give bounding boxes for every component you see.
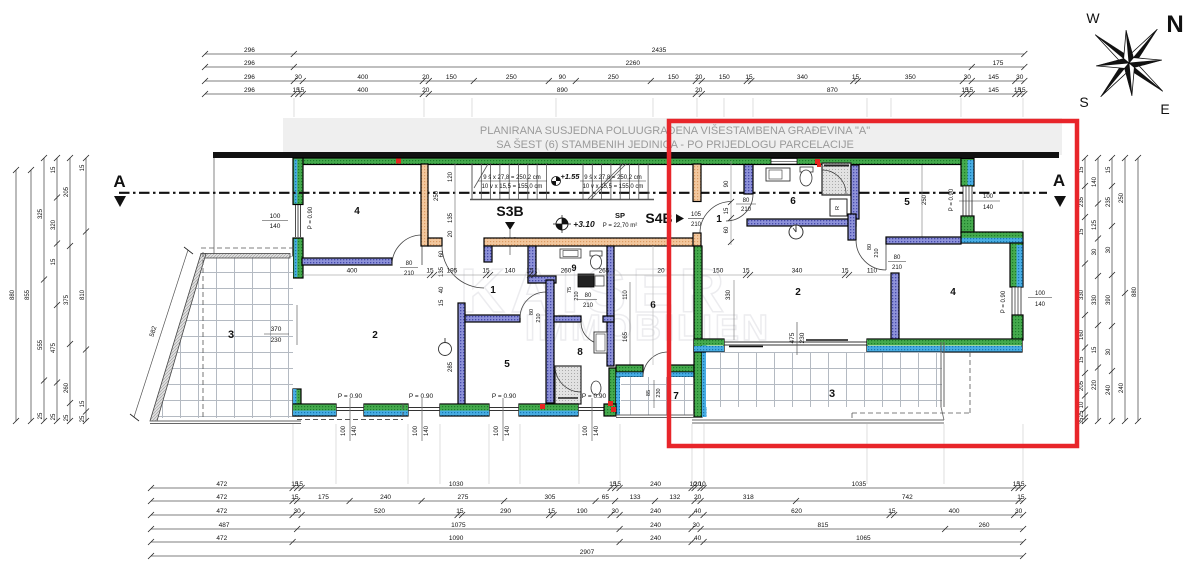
svg-text:150: 150 bbox=[719, 74, 730, 81]
svg-text:240: 240 bbox=[1119, 382, 1125, 393]
svg-text:40: 40 bbox=[694, 535, 702, 542]
svg-text:15: 15 bbox=[482, 268, 490, 275]
svg-text:140: 140 bbox=[424, 425, 430, 436]
svg-text:620: 620 bbox=[791, 508, 802, 515]
svg-text:318: 318 bbox=[743, 494, 754, 501]
svg-text:1: 1 bbox=[490, 285, 496, 296]
svg-text:296: 296 bbox=[244, 87, 255, 94]
svg-text:N: N bbox=[1166, 11, 1183, 38]
svg-text:145: 145 bbox=[988, 74, 999, 81]
svg-text:80: 80 bbox=[406, 261, 413, 267]
svg-text:100: 100 bbox=[1035, 291, 1046, 297]
svg-text:100: 100 bbox=[983, 194, 994, 200]
svg-text:110: 110 bbox=[623, 290, 629, 300]
svg-text:240: 240 bbox=[650, 522, 661, 529]
svg-text:7: 7 bbox=[673, 391, 679, 402]
svg-text:140: 140 bbox=[983, 205, 994, 211]
svg-text:132: 132 bbox=[669, 494, 680, 501]
svg-text:80: 80 bbox=[743, 198, 750, 204]
svg-text:340: 340 bbox=[797, 74, 808, 81]
svg-text:330: 330 bbox=[1079, 289, 1085, 300]
svg-text:855: 855 bbox=[25, 289, 31, 300]
svg-text:SA ŠEST (6) STAMBENIH JEDINICA: SA ŠEST (6) STAMBENIH JEDINICA - PO PRIJ… bbox=[496, 138, 854, 151]
svg-text:230: 230 bbox=[799, 332, 806, 343]
svg-text:5: 5 bbox=[904, 197, 910, 208]
svg-text:340: 340 bbox=[792, 268, 803, 275]
svg-text:400: 400 bbox=[949, 508, 960, 515]
svg-text:375: 375 bbox=[64, 294, 70, 305]
svg-text:9 š x 27,8 = 250,2 cm: 9 š x 27,8 = 250,2 cm bbox=[483, 175, 541, 181]
svg-text:160: 160 bbox=[1079, 329, 1085, 340]
svg-text:105: 105 bbox=[691, 212, 702, 218]
svg-text:30: 30 bbox=[964, 74, 972, 81]
svg-text:15: 15 bbox=[1092, 346, 1098, 353]
svg-text:810: 810 bbox=[80, 289, 86, 300]
svg-text:25: 25 bbox=[64, 414, 70, 421]
svg-text:165: 165 bbox=[623, 331, 629, 342]
svg-text:80: 80 bbox=[894, 255, 901, 261]
svg-text:260: 260 bbox=[561, 268, 572, 275]
svg-text:400: 400 bbox=[347, 268, 358, 275]
svg-text:S: S bbox=[1079, 94, 1088, 110]
svg-text:205: 205 bbox=[1079, 380, 1085, 391]
svg-text:P = 0.90: P = 0.90 bbox=[492, 393, 517, 400]
svg-text:30: 30 bbox=[1092, 248, 1098, 255]
svg-text:210: 210 bbox=[583, 303, 594, 309]
svg-text:275: 275 bbox=[457, 494, 468, 501]
svg-text:555: 555 bbox=[38, 339, 44, 350]
svg-text:75: 75 bbox=[567, 287, 573, 293]
svg-text:P = 0.90: P = 0.90 bbox=[949, 188, 955, 211]
svg-text:60: 60 bbox=[724, 226, 730, 233]
svg-text:472: 472 bbox=[216, 481, 227, 488]
svg-text:15: 15 bbox=[1079, 356, 1085, 363]
svg-text:235: 235 bbox=[1106, 196, 1112, 207]
svg-text:100: 100 bbox=[494, 425, 500, 436]
svg-text:240: 240 bbox=[650, 535, 661, 542]
svg-text:260: 260 bbox=[64, 382, 70, 393]
svg-text:30: 30 bbox=[611, 508, 619, 515]
svg-text:20: 20 bbox=[695, 74, 703, 81]
svg-text:100: 100 bbox=[413, 425, 419, 436]
svg-text:6: 6 bbox=[790, 196, 796, 207]
svg-text:4: 4 bbox=[950, 287, 956, 298]
svg-text:175: 175 bbox=[993, 60, 1004, 67]
svg-text:P = 0.90: P = 0.90 bbox=[1001, 290, 1007, 313]
svg-text:90: 90 bbox=[724, 180, 730, 187]
svg-text:5: 5 bbox=[504, 359, 510, 370]
svg-text:475: 475 bbox=[51, 342, 57, 353]
svg-text:10: 10 bbox=[1079, 401, 1085, 408]
svg-text:870: 870 bbox=[827, 87, 838, 94]
svg-text:296: 296 bbox=[244, 74, 255, 81]
svg-text:210: 210 bbox=[691, 222, 702, 228]
svg-text:8: 8 bbox=[577, 347, 583, 358]
svg-text:296: 296 bbox=[244, 60, 255, 67]
svg-text:475: 475 bbox=[789, 332, 796, 343]
svg-text:472: 472 bbox=[216, 535, 227, 542]
svg-text:125: 125 bbox=[1092, 219, 1098, 230]
svg-text:25: 25 bbox=[38, 412, 44, 419]
svg-text:140: 140 bbox=[1035, 302, 1046, 308]
svg-text:4: 4 bbox=[354, 206, 360, 217]
svg-text:320: 320 bbox=[51, 219, 57, 230]
svg-text:15: 15 bbox=[1079, 228, 1085, 235]
svg-text:2: 2 bbox=[372, 330, 378, 341]
svg-text:240: 240 bbox=[1106, 384, 1112, 395]
svg-text:582: 582 bbox=[149, 325, 159, 338]
svg-text:140: 140 bbox=[1092, 176, 1098, 187]
svg-text:150: 150 bbox=[446, 74, 457, 81]
svg-text:15: 15 bbox=[51, 258, 57, 265]
svg-text:100: 100 bbox=[341, 425, 347, 436]
svg-text:880: 880 bbox=[10, 289, 16, 300]
svg-text:15: 15 bbox=[51, 166, 57, 173]
svg-text:330: 330 bbox=[1092, 294, 1098, 305]
svg-text:3: 3 bbox=[228, 329, 234, 341]
svg-text:2907: 2907 bbox=[580, 549, 595, 556]
svg-text:9: 9 bbox=[571, 263, 576, 273]
svg-text:190: 190 bbox=[577, 508, 588, 515]
svg-text:880: 880 bbox=[1132, 286, 1138, 297]
svg-text:305: 305 bbox=[544, 494, 555, 501]
svg-text:R: R bbox=[835, 206, 841, 210]
svg-text:472: 472 bbox=[216, 508, 227, 515]
svg-text:150: 150 bbox=[713, 268, 724, 275]
svg-text:15: 15 bbox=[1079, 166, 1085, 173]
svg-text:A: A bbox=[113, 172, 125, 191]
svg-text:P = 22,70 m²: P = 22,70 m² bbox=[603, 223, 637, 229]
svg-text:PLANIRANA SUSJEDNA POLUUGRAĐEN: PLANIRANA SUSJEDNA POLUUGRAĐENA VIŠESTAM… bbox=[480, 124, 870, 137]
svg-text:E: E bbox=[1160, 101, 1169, 117]
svg-text:20: 20 bbox=[657, 268, 665, 275]
svg-text:25: 25 bbox=[51, 413, 57, 420]
svg-text:890: 890 bbox=[557, 87, 568, 94]
svg-text:1075: 1075 bbox=[451, 522, 466, 529]
svg-text:15: 15 bbox=[1106, 166, 1112, 173]
svg-text:250: 250 bbox=[922, 194, 928, 205]
svg-text:60: 60 bbox=[439, 250, 445, 257]
svg-text:1065: 1065 bbox=[856, 535, 871, 542]
svg-text:210: 210 bbox=[536, 313, 542, 322]
svg-text:140: 140 bbox=[594, 425, 600, 436]
svg-text:140: 140 bbox=[352, 425, 358, 436]
svg-text:15: 15 bbox=[80, 164, 86, 171]
svg-text:30: 30 bbox=[1106, 348, 1112, 355]
svg-text:80: 80 bbox=[529, 309, 535, 315]
svg-text:100: 100 bbox=[583, 425, 589, 436]
svg-text:210: 210 bbox=[404, 271, 415, 277]
svg-text:+3.10: +3.10 bbox=[573, 219, 595, 229]
svg-text:80: 80 bbox=[867, 244, 873, 250]
svg-text:265: 265 bbox=[599, 268, 610, 275]
svg-text:400: 400 bbox=[357, 87, 368, 94]
svg-text:SP: SP bbox=[615, 211, 625, 220]
svg-text:520: 520 bbox=[374, 508, 385, 515]
svg-text:25: 25 bbox=[80, 415, 86, 422]
svg-text:100: 100 bbox=[270, 213, 281, 220]
svg-text:25: 25 bbox=[1079, 410, 1085, 417]
svg-text:10 v x 15,5 = 155,0 cm: 10 v x 15,5 = 155,0 cm bbox=[583, 184, 644, 190]
svg-text:742: 742 bbox=[902, 494, 913, 501]
svg-text:15: 15 bbox=[526, 268, 534, 275]
svg-text:175: 175 bbox=[318, 494, 329, 501]
svg-text:P = 0.90: P = 0.90 bbox=[308, 206, 314, 229]
svg-text:15: 15 bbox=[439, 299, 445, 306]
svg-text:15: 15 bbox=[80, 400, 86, 407]
svg-text:150: 150 bbox=[668, 74, 679, 81]
svg-text:370: 370 bbox=[271, 326, 282, 333]
svg-text:1030: 1030 bbox=[449, 481, 464, 488]
svg-text:20: 20 bbox=[448, 230, 454, 237]
svg-text:250: 250 bbox=[608, 74, 619, 81]
svg-text:30: 30 bbox=[1106, 246, 1112, 253]
svg-text:296: 296 bbox=[244, 47, 255, 54]
svg-text:210: 210 bbox=[874, 248, 880, 257]
svg-text:40: 40 bbox=[694, 508, 702, 515]
svg-text:285: 285 bbox=[448, 361, 454, 372]
svg-text:330: 330 bbox=[726, 289, 732, 300]
svg-text:+1.55: +1.55 bbox=[561, 172, 581, 181]
svg-text:250: 250 bbox=[506, 74, 517, 81]
svg-text:15: 15 bbox=[841, 268, 849, 275]
svg-text:260: 260 bbox=[979, 522, 990, 529]
svg-text:487: 487 bbox=[219, 522, 230, 529]
svg-text:9 š x 27,8 = 250,2 cm: 9 š x 27,8 = 250,2 cm bbox=[584, 175, 642, 181]
svg-text:30: 30 bbox=[1016, 74, 1024, 81]
svg-text:240: 240 bbox=[650, 481, 661, 488]
svg-text:135: 135 bbox=[439, 266, 445, 277]
svg-text:140: 140 bbox=[505, 425, 511, 436]
svg-text:3: 3 bbox=[829, 388, 835, 400]
svg-text:30: 30 bbox=[293, 508, 301, 515]
svg-text:2260: 2260 bbox=[626, 60, 641, 67]
svg-text:1: 1 bbox=[716, 214, 722, 225]
svg-text:65: 65 bbox=[602, 494, 610, 501]
svg-text:120: 120 bbox=[448, 171, 454, 182]
svg-text:140: 140 bbox=[505, 268, 516, 275]
svg-text:S3B: S3B bbox=[496, 203, 523, 219]
svg-text:P = 0.90: P = 0.90 bbox=[409, 393, 434, 400]
svg-text:30: 30 bbox=[1015, 508, 1023, 515]
svg-text:135: 135 bbox=[448, 212, 454, 223]
svg-text:205: 205 bbox=[64, 186, 70, 197]
svg-text:20: 20 bbox=[422, 87, 430, 94]
svg-text:80: 80 bbox=[585, 293, 592, 299]
svg-text:1090: 1090 bbox=[449, 535, 464, 542]
svg-text:210: 210 bbox=[892, 265, 903, 271]
svg-text:20: 20 bbox=[694, 494, 702, 501]
svg-text:40: 40 bbox=[439, 286, 445, 293]
svg-text:815: 815 bbox=[817, 522, 828, 529]
svg-text:133: 133 bbox=[630, 494, 641, 501]
svg-text:15: 15 bbox=[724, 207, 730, 214]
svg-text:30: 30 bbox=[692, 522, 700, 529]
svg-text:240: 240 bbox=[380, 494, 391, 501]
svg-text:210: 210 bbox=[741, 207, 752, 213]
svg-text:230: 230 bbox=[271, 337, 282, 344]
svg-text:20: 20 bbox=[422, 74, 430, 81]
svg-text:2: 2 bbox=[795, 287, 801, 298]
svg-text:350: 350 bbox=[905, 74, 916, 81]
svg-text:250: 250 bbox=[1119, 192, 1125, 203]
svg-text:2435: 2435 bbox=[652, 47, 667, 54]
svg-text:P = 0.90: P = 0.90 bbox=[582, 393, 607, 400]
svg-text:90: 90 bbox=[559, 74, 567, 81]
svg-text:250: 250 bbox=[434, 190, 440, 201]
svg-text:15: 15 bbox=[426, 268, 434, 275]
svg-text:195: 195 bbox=[447, 268, 458, 275]
svg-text:220: 220 bbox=[1092, 379, 1098, 390]
svg-text:30: 30 bbox=[295, 74, 303, 81]
svg-text:325: 325 bbox=[38, 208, 44, 219]
svg-text:15: 15 bbox=[742, 268, 750, 275]
svg-text:472: 472 bbox=[216, 494, 227, 501]
svg-text:W: W bbox=[1086, 10, 1100, 26]
svg-text:1035: 1035 bbox=[852, 481, 867, 488]
svg-text:10 v x 15,5 = 155,0 cm: 10 v x 15,5 = 155,0 cm bbox=[482, 184, 543, 190]
svg-text:20: 20 bbox=[695, 87, 703, 94]
svg-text:235: 235 bbox=[1079, 196, 1085, 207]
svg-text:85: 85 bbox=[646, 390, 652, 396]
svg-text:230: 230 bbox=[656, 388, 662, 397]
svg-text:140: 140 bbox=[270, 223, 281, 230]
svg-text:35: 35 bbox=[1079, 417, 1085, 424]
svg-text:240: 240 bbox=[650, 508, 661, 515]
svg-text:A: A bbox=[1053, 171, 1065, 190]
svg-text:290: 290 bbox=[500, 508, 511, 515]
svg-text:390: 390 bbox=[1106, 294, 1112, 305]
svg-text:145: 145 bbox=[988, 87, 999, 94]
svg-text:400: 400 bbox=[357, 74, 368, 81]
